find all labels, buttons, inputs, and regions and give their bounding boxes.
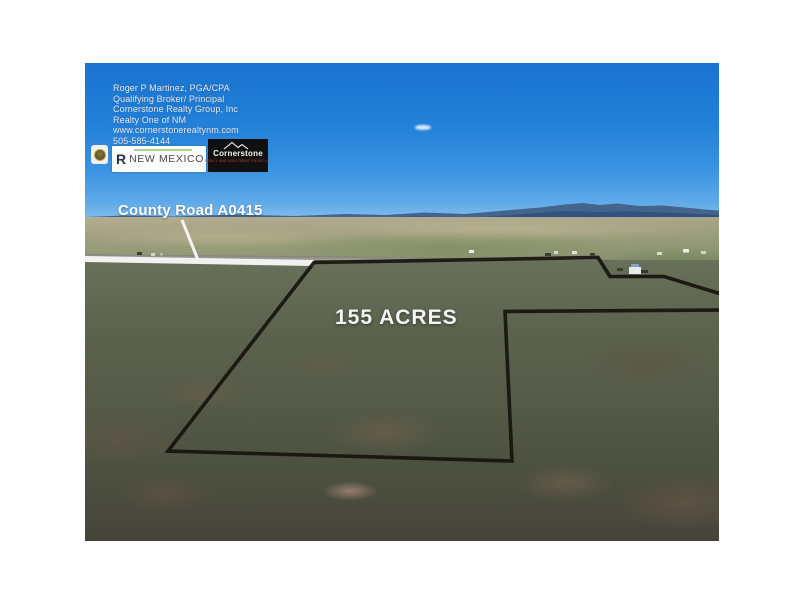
road-pointer-line xyxy=(182,220,198,260)
contact-line: Cornerstone Realty Group, Inc xyxy=(113,104,239,115)
contact-line: Realty One of NM xyxy=(113,115,239,126)
realty-one-logo: R NEW MEXICO xyxy=(112,146,206,172)
realty-one-microtext xyxy=(134,149,192,151)
award-seal-icon xyxy=(91,145,108,164)
aerial-listing-photo: Roger P Martinez, PGA/CPA Qualifying Bro… xyxy=(85,63,719,541)
parcel-boundary-line xyxy=(168,258,719,462)
broker-contact-block: Roger P Martinez, PGA/CPA Qualifying Bro… xyxy=(113,83,239,147)
road-name-label: County Road A0415 xyxy=(118,202,263,219)
road-highlight-bar xyxy=(85,259,314,263)
contact-line: Roger P Martinez, PGA/CPA xyxy=(113,83,239,94)
realty-one-mark: R xyxy=(116,152,126,166)
cornerstone-logo: Cornerstone REALTY AND INVESTMENT GROUP … xyxy=(208,139,268,172)
contact-website: www.cornerstonerealtynm.com xyxy=(113,125,239,136)
seal-circle xyxy=(94,149,106,161)
acreage-label: 155 ACRES xyxy=(335,306,458,330)
page: Roger P Martinez, PGA/CPA Qualifying Bro… xyxy=(0,0,800,600)
realty-one-name: NEW MEXICO xyxy=(129,153,204,165)
contact-line: Qualifying Broker/ Principal xyxy=(113,94,239,105)
cornerstone-tagline: REALTY AND INVESTMENT GROUP LLC xyxy=(205,159,271,164)
cornerstone-name: Cornerstone xyxy=(213,150,263,159)
